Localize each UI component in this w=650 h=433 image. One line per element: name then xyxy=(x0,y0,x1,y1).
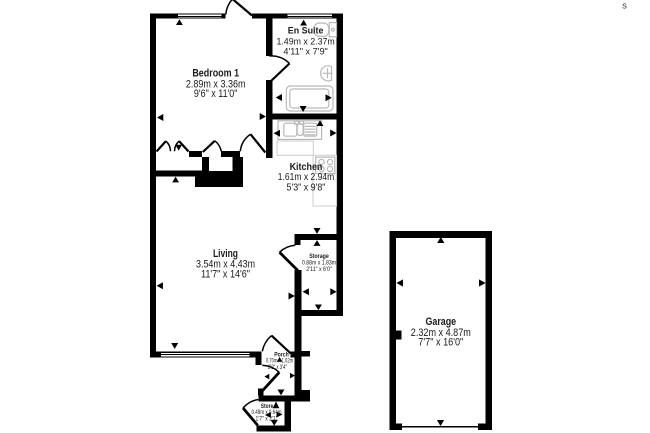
svg-text:1'7" x 2'1": 1'7" x 2'1" xyxy=(256,415,278,422)
svg-text:0.88m x 1.83m: 0.88m x 1.83m xyxy=(302,260,336,266)
svg-text:1.49m x 2.37m: 1.49m x 2.37m xyxy=(276,37,334,47)
svg-text:11'7" x 14'6": 11'7" x 14'6" xyxy=(201,268,250,280)
svg-text:1.61m x 2.94m: 1.61m x 2.94m xyxy=(278,172,334,183)
svg-text:En Suite: En Suite xyxy=(288,26,324,36)
svg-text:2'2" x 3'4": 2'2" x 3'4" xyxy=(268,364,287,371)
svg-text:5'3" x 9'8": 5'3" x 9'8" xyxy=(287,183,326,194)
svg-text:S: S xyxy=(622,4,627,11)
svg-text:4'11" x 7'9": 4'11" x 7'9" xyxy=(283,46,327,56)
svg-text:Storage: Storage xyxy=(309,253,329,260)
svg-text:9'6" x 11'0": 9'6" x 11'0" xyxy=(194,88,238,100)
svg-text:2'11" x 6'0": 2'11" x 6'0" xyxy=(306,267,332,273)
svg-text:7'7" x 16'0": 7'7" x 16'0" xyxy=(418,336,463,348)
